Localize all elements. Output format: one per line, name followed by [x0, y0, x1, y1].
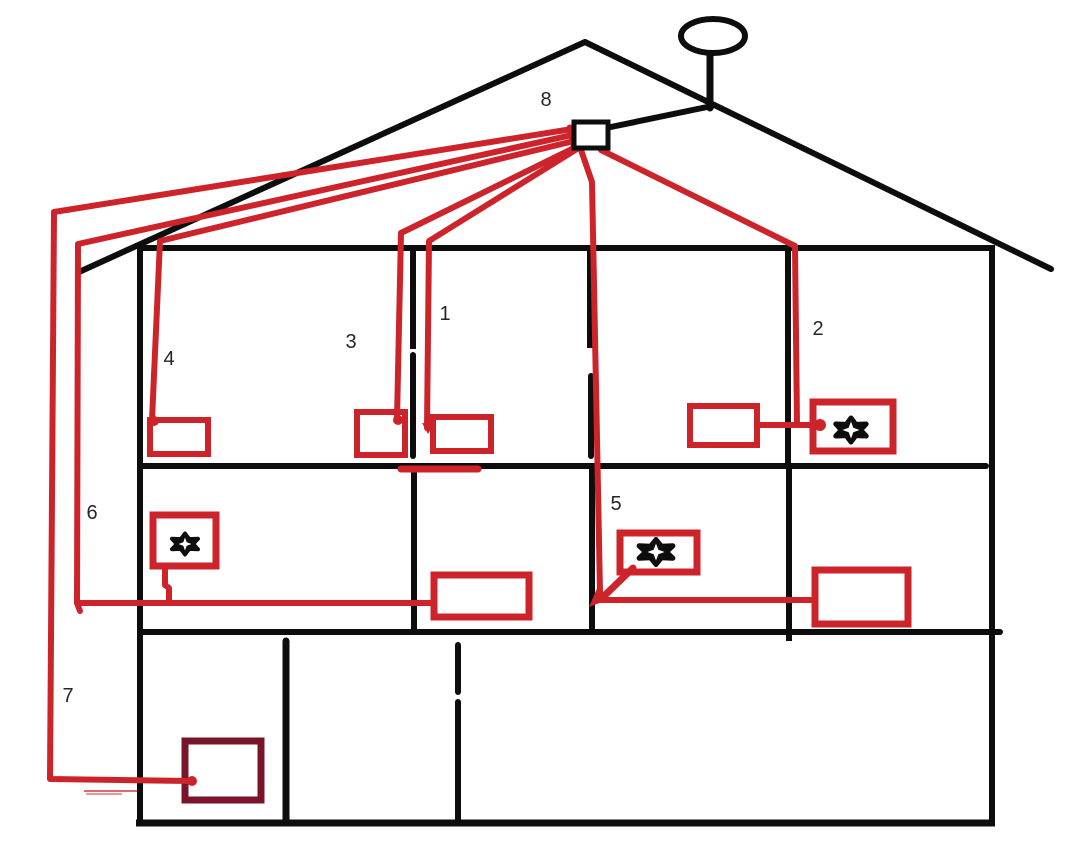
svg-text:8: 8 — [540, 89, 551, 111]
svg-text:1: 1 — [439, 303, 450, 325]
svg-text:4: 4 — [163, 348, 174, 370]
svg-text:2: 2 — [812, 318, 823, 340]
svg-text:7: 7 — [62, 685, 73, 707]
svg-text:3: 3 — [345, 331, 356, 353]
svg-text:5: 5 — [610, 493, 621, 515]
svg-text:6: 6 — [86, 502, 97, 524]
